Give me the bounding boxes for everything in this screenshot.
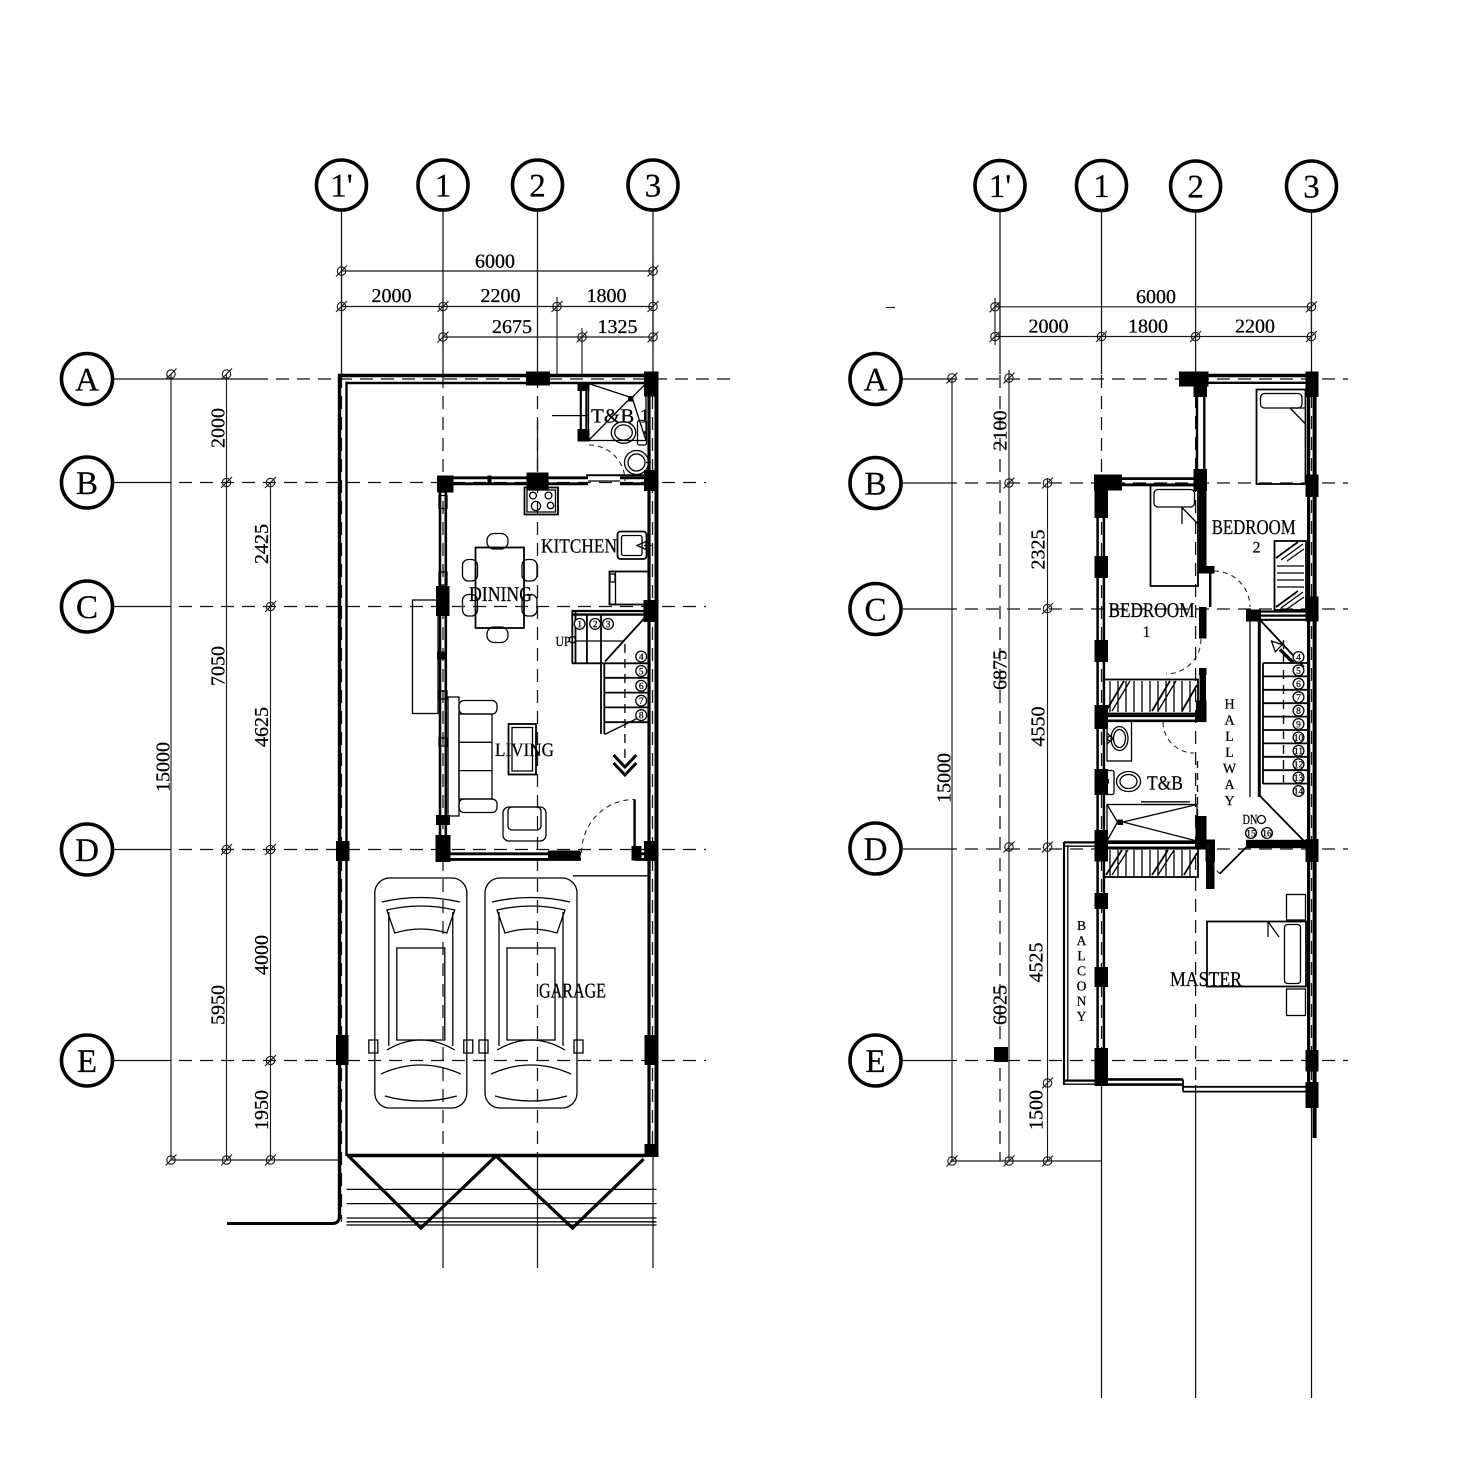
svg-text:BEDROOM: BEDROOM xyxy=(1108,598,1194,622)
svg-text:7050: 7050 xyxy=(209,646,230,686)
svg-text:13: 13 xyxy=(1294,774,1304,784)
svg-text:B: B xyxy=(76,466,98,502)
svg-text:DN: DN xyxy=(1242,813,1257,828)
svg-text:2200: 2200 xyxy=(480,286,520,307)
svg-text:1: 1 xyxy=(1093,169,1110,205)
svg-text:1800: 1800 xyxy=(1128,316,1168,337)
svg-text:6000: 6000 xyxy=(475,251,515,272)
svg-text:1: 1 xyxy=(577,620,582,630)
svg-text:GARAGE: GARAGE xyxy=(539,978,606,1002)
svg-text:4: 4 xyxy=(639,653,644,663)
svg-text:A: A xyxy=(1224,714,1235,729)
svg-text:2000: 2000 xyxy=(1028,316,1068,337)
svg-text:5: 5 xyxy=(1296,667,1301,677)
svg-text:D: D xyxy=(864,832,888,868)
svg-text:6: 6 xyxy=(639,682,644,692)
svg-text:H: H xyxy=(1224,697,1234,712)
svg-text:4: 4 xyxy=(1296,653,1301,663)
svg-text:4000: 4000 xyxy=(252,935,273,975)
svg-text:16: 16 xyxy=(1262,829,1272,839)
svg-text:O: O xyxy=(1077,978,1087,993)
svg-text:W: W xyxy=(1223,762,1237,777)
svg-text:1': 1' xyxy=(989,169,1011,205)
svg-text:E: E xyxy=(77,1044,97,1080)
svg-text:C: C xyxy=(76,590,98,626)
svg-text:L: L xyxy=(1077,948,1085,963)
svg-text:8: 8 xyxy=(1296,707,1301,717)
svg-text:1325: 1325 xyxy=(597,317,637,338)
svg-text:2: 2 xyxy=(1187,169,1204,205)
svg-text:14: 14 xyxy=(1294,787,1304,797)
svg-text:N: N xyxy=(1077,993,1087,1008)
svg-text:4550: 4550 xyxy=(1029,707,1050,747)
svg-text:1800: 1800 xyxy=(586,286,626,307)
svg-text:T&B 1: T&B 1 xyxy=(591,405,650,427)
svg-text:L: L xyxy=(1225,746,1234,761)
svg-text:2: 2 xyxy=(593,620,598,630)
svg-text:2: 2 xyxy=(529,168,546,204)
svg-text:15000: 15000 xyxy=(154,742,175,792)
svg-text:2: 2 xyxy=(1252,539,1260,556)
svg-text:10: 10 xyxy=(1294,734,1304,744)
svg-text:LIVING: LIVING xyxy=(495,740,554,761)
svg-text:2200: 2200 xyxy=(1235,316,1275,337)
svg-text:15: 15 xyxy=(1246,829,1256,839)
svg-text:BEDROOM: BEDROOM xyxy=(1212,515,1296,539)
svg-text:1': 1' xyxy=(330,168,352,204)
svg-text:1500: 1500 xyxy=(1027,1090,1048,1130)
svg-text:1950: 1950 xyxy=(252,1090,273,1130)
svg-text:6025: 6025 xyxy=(991,985,1012,1025)
svg-text:MASTER: MASTER xyxy=(1170,967,1242,991)
svg-text:L: L xyxy=(1225,730,1234,745)
svg-text:2000: 2000 xyxy=(371,286,411,307)
svg-text:4625: 4625 xyxy=(252,707,273,747)
svg-text:6000: 6000 xyxy=(1136,287,1176,308)
svg-text:Y: Y xyxy=(1077,1009,1087,1024)
svg-text:C: C xyxy=(864,592,886,628)
svg-text:B: B xyxy=(1077,918,1086,933)
svg-text:7: 7 xyxy=(639,697,644,707)
svg-text:E: E xyxy=(865,1044,885,1080)
svg-text:D: D xyxy=(75,833,99,869)
svg-text:1: 1 xyxy=(1142,624,1150,641)
svg-text:9: 9 xyxy=(1296,720,1301,730)
svg-text:2425: 2425 xyxy=(252,524,273,564)
svg-text:A: A xyxy=(1224,778,1235,793)
svg-text:3: 3 xyxy=(1303,169,1320,205)
svg-text:6875: 6875 xyxy=(991,650,1012,690)
svg-text:DINING: DINING xyxy=(469,582,532,606)
svg-text:KITCHEN: KITCHEN xyxy=(541,535,617,557)
svg-text:Y: Y xyxy=(1224,794,1234,809)
svg-text:B: B xyxy=(864,466,886,502)
svg-text:T&B: T&B xyxy=(1147,772,1183,794)
svg-text:2000: 2000 xyxy=(209,408,230,448)
svg-text:2675: 2675 xyxy=(492,317,532,338)
svg-text:6: 6 xyxy=(1296,680,1301,690)
svg-text:5: 5 xyxy=(639,667,644,677)
svg-text:4525: 4525 xyxy=(1027,943,1048,983)
svg-text:5950: 5950 xyxy=(209,985,230,1025)
svg-text:8: 8 xyxy=(639,711,644,721)
svg-text:11: 11 xyxy=(1294,747,1303,757)
svg-text:2325: 2325 xyxy=(1029,530,1050,570)
svg-text:15000: 15000 xyxy=(935,753,956,803)
svg-text:1: 1 xyxy=(435,168,452,204)
svg-text:2100: 2100 xyxy=(991,411,1012,451)
svg-text:7: 7 xyxy=(1296,693,1301,703)
svg-text:3: 3 xyxy=(645,168,662,204)
svg-text:C: C xyxy=(1077,963,1086,978)
svg-text:12: 12 xyxy=(1294,760,1304,770)
svg-text:UP: UP xyxy=(555,635,570,650)
svg-text:A: A xyxy=(1077,933,1087,948)
svg-text:A: A xyxy=(864,362,888,398)
svg-text:3: 3 xyxy=(606,620,611,630)
svg-text:A: A xyxy=(75,362,99,398)
